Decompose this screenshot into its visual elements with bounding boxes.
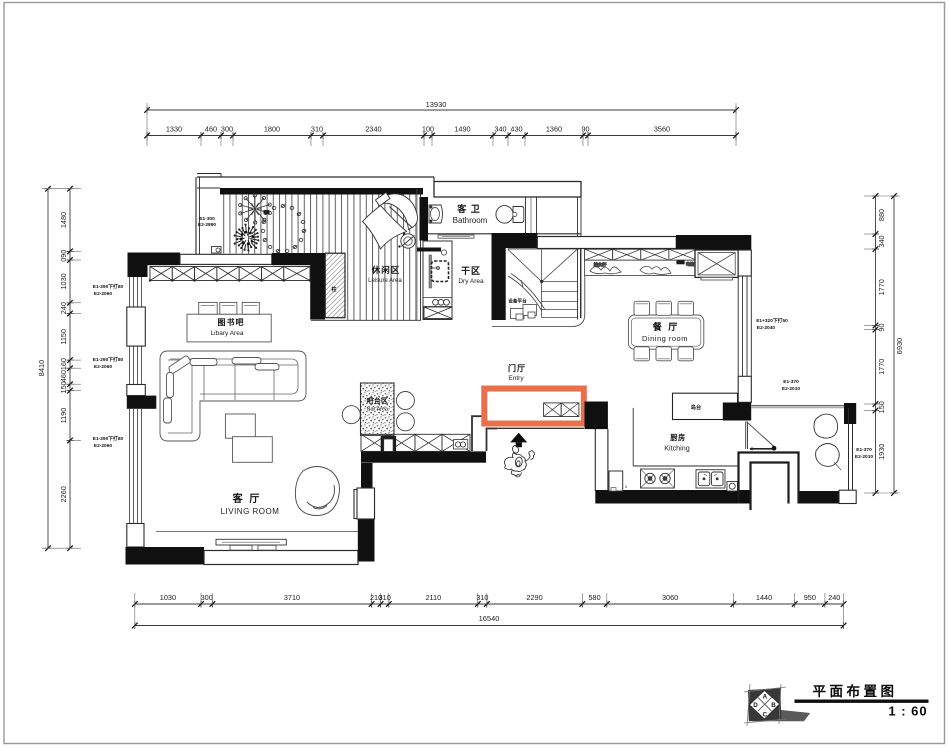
svg-text:13930: 13930	[426, 100, 447, 109]
svg-text:1030: 1030	[160, 593, 176, 602]
svg-text:挂衣杆: 挂衣杆	[594, 261, 607, 268]
svg-text:B: B	[771, 702, 776, 709]
svg-text:340: 340	[877, 235, 886, 247]
svg-text:090: 090	[59, 250, 68, 262]
svg-text:柱: 柱	[331, 286, 336, 293]
svg-text:8410: 8410	[37, 360, 46, 377]
svg-text:E1-290下打80: E1-290下打80	[93, 283, 124, 290]
svg-text:厨房: 厨房	[670, 433, 685, 442]
svg-text:460: 460	[205, 125, 217, 134]
svg-text:90: 90	[581, 125, 589, 134]
svg-text:E1-290下打80: E1-290下打80	[93, 356, 124, 363]
svg-text:300: 300	[221, 125, 233, 134]
svg-text:460: 460	[59, 370, 68, 382]
svg-text:E2-2890: E2-2890	[198, 222, 216, 228]
svg-text:1800: 1800	[264, 125, 280, 134]
svg-text:100: 100	[422, 125, 434, 134]
svg-text:1440: 1440	[756, 593, 772, 602]
svg-text:1770: 1770	[877, 279, 886, 295]
svg-text:950: 950	[804, 593, 816, 602]
svg-text:310: 310	[311, 125, 323, 134]
svg-text:干区: 干区	[461, 266, 481, 276]
svg-text:1030: 1030	[59, 273, 68, 289]
svg-text:设备平台: 设备平台	[508, 298, 527, 305]
svg-text:LIVING ROOM: LIVING ROOM	[221, 507, 280, 516]
svg-text:90: 90	[877, 323, 886, 331]
svg-text:2110: 2110	[425, 593, 441, 602]
svg-text:310: 310	[476, 593, 488, 602]
svg-text:1770: 1770	[877, 359, 886, 375]
svg-text:E2-2060: E2-2060	[94, 443, 112, 449]
svg-text:6930: 6930	[895, 338, 904, 355]
svg-text:2260: 2260	[59, 486, 68, 502]
svg-text:客 厅: 客 厅	[232, 492, 262, 505]
svg-text:300: 300	[201, 593, 213, 602]
svg-text:C: C	[763, 712, 768, 719]
svg-text:D: D	[753, 702, 758, 709]
svg-text:340: 340	[494, 125, 506, 134]
svg-text:电箱: 电箱	[686, 261, 695, 268]
svg-text:A: A	[763, 694, 768, 701]
svg-text:E1-370: E1-370	[783, 379, 799, 385]
svg-text:2340: 2340	[365, 125, 381, 134]
svg-text:240: 240	[59, 302, 68, 314]
svg-text:E1+320下打50: E1+320下打50	[756, 317, 788, 324]
svg-text:E2-2060: E2-2060	[94, 364, 112, 370]
svg-text:Libary Area: Libary Area	[211, 330, 244, 337]
svg-text:E2-2060: E2-2060	[94, 291, 112, 297]
svg-text:160: 160	[59, 358, 68, 370]
svg-text:岛台: 岛台	[691, 403, 701, 411]
svg-text:E2-2010: E2-2010	[855, 454, 873, 460]
svg-text:430: 430	[510, 125, 522, 134]
svg-text:Leisure Area: Leisure Area	[368, 278, 402, 284]
svg-text:3710: 3710	[284, 593, 300, 602]
svg-text:3060: 3060	[662, 593, 678, 602]
svg-text:E1-300: E1-300	[199, 216, 215, 222]
svg-text:1150: 1150	[59, 329, 68, 345]
svg-text:门厅: 门厅	[508, 363, 526, 373]
svg-text:Bar Area: Bar Area	[367, 407, 388, 413]
svg-text:E2-2040: E2-2040	[757, 325, 775, 331]
svg-text:E1-370: E1-370	[856, 447, 872, 453]
svg-text:E1-290下打80: E1-290下打80	[93, 435, 124, 442]
svg-text:240: 240	[828, 593, 840, 602]
svg-text:1480: 1480	[59, 212, 68, 228]
svg-text:Entry: Entry	[508, 375, 524, 382]
svg-text:580: 580	[588, 593, 600, 602]
svg-text:3560: 3560	[654, 125, 670, 134]
svg-text:1490: 1490	[454, 125, 470, 134]
svg-text:150: 150	[877, 401, 886, 413]
svg-text:1 : 60: 1 : 60	[888, 704, 927, 719]
svg-text:16540: 16540	[479, 614, 500, 623]
svg-text:Bathroom: Bathroom	[453, 216, 488, 225]
svg-text:客 卫: 客 卫	[456, 203, 481, 214]
svg-text:吧台区: 吧台区	[367, 396, 389, 405]
svg-text:880: 880	[877, 209, 886, 221]
svg-text:餐 厅: 餐 厅	[652, 321, 680, 332]
svg-text:平面布置图: 平面布置图	[813, 683, 898, 699]
svg-text:1190: 1190	[59, 408, 68, 424]
svg-text:图书吧: 图书吧	[218, 317, 245, 327]
svg-text:150: 150	[59, 381, 68, 393]
svg-text:Dining room: Dining room	[642, 334, 688, 343]
svg-text:E2-2010: E2-2010	[782, 386, 800, 392]
svg-text:2290: 2290	[526, 593, 542, 602]
svg-text:310: 310	[379, 593, 391, 602]
svg-text:休闲区: 休闲区	[371, 265, 401, 275]
svg-text:1330: 1330	[166, 125, 182, 134]
svg-text:1360: 1360	[546, 125, 562, 134]
svg-text:1930: 1930	[877, 444, 886, 460]
svg-text:Kitching: Kitching	[664, 444, 690, 453]
svg-text:Dry Area: Dry Area	[458, 278, 484, 285]
